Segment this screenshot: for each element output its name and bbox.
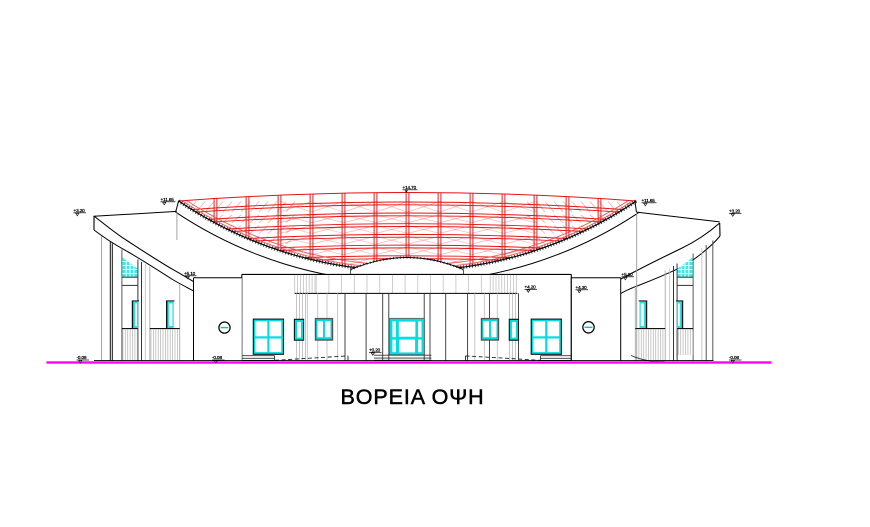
svg-text:+14.70: +14.70 bbox=[403, 185, 417, 190]
svg-text:+5.10: +5.10 bbox=[184, 271, 196, 276]
svg-text:ΒΟΡΕΙΑ ΟΨΗ: ΒΟΡΕΙΑ ΟΨΗ bbox=[341, 385, 485, 409]
svg-text:+11.65: +11.65 bbox=[161, 197, 175, 202]
svg-text:+4.30: +4.30 bbox=[576, 285, 588, 290]
svg-text:+3.20: +3.20 bbox=[729, 209, 741, 214]
svg-text:+5.10: +5.10 bbox=[622, 272, 634, 277]
svg-text:-0.08: -0.08 bbox=[212, 355, 223, 360]
svg-text:-0.08: -0.08 bbox=[729, 355, 740, 360]
svg-text:+11.65: +11.65 bbox=[642, 198, 656, 203]
svg-text:-0.08: -0.08 bbox=[77, 355, 88, 360]
svg-text:+4.20: +4.20 bbox=[525, 285, 537, 290]
svg-text:+0.20: +0.20 bbox=[369, 348, 381, 353]
svg-text:+3.20: +3.20 bbox=[74, 208, 86, 213]
